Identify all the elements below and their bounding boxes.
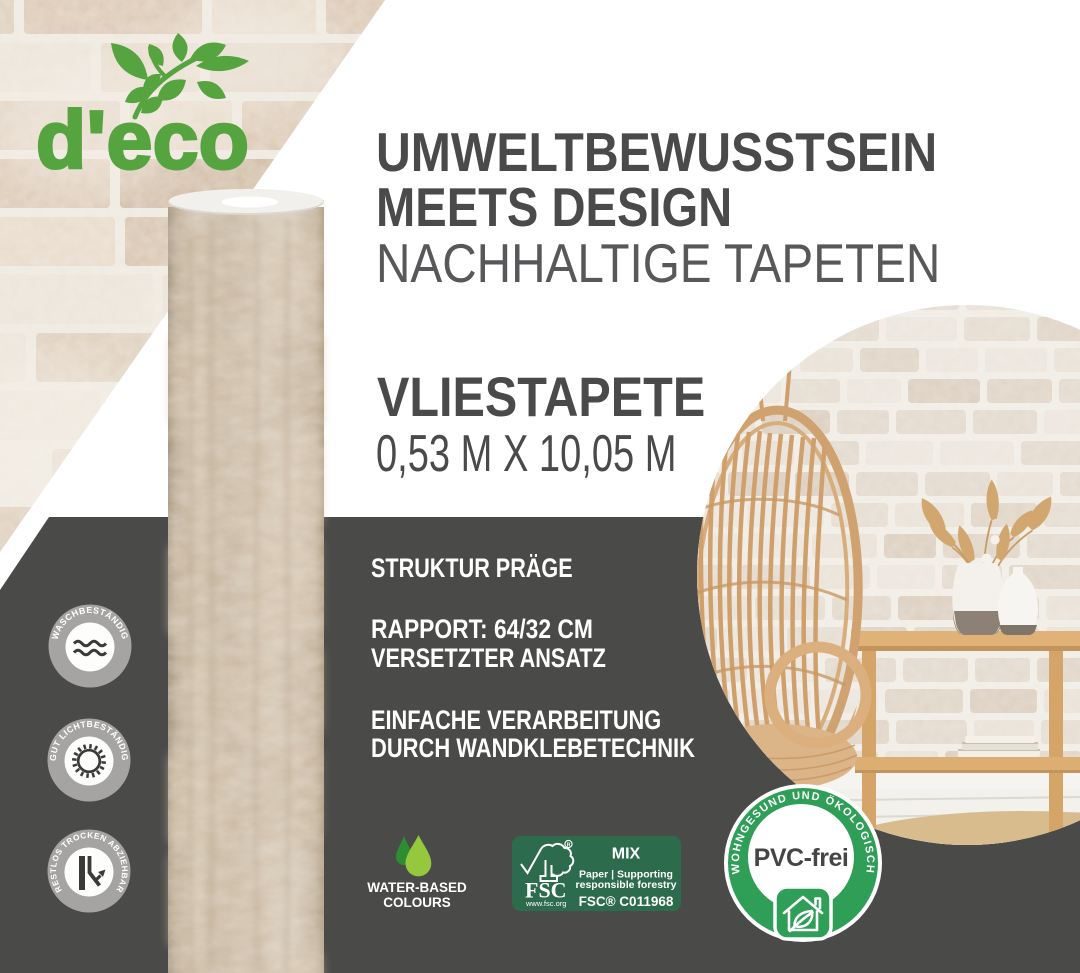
svg-text:PVC-frei: PVC-frei [754, 844, 849, 872]
svg-text:MIX: MIX [612, 846, 641, 863]
svg-text:R: R [567, 842, 571, 848]
svg-text:FSC® C011968: FSC® C011968 [579, 894, 674, 909]
svg-text:www.fsc.org: www.fsc.org [525, 899, 566, 908]
svg-text:d'eco: d'eco [36, 95, 249, 186]
svg-text:responsible forestry: responsible forestry [576, 879, 677, 891]
